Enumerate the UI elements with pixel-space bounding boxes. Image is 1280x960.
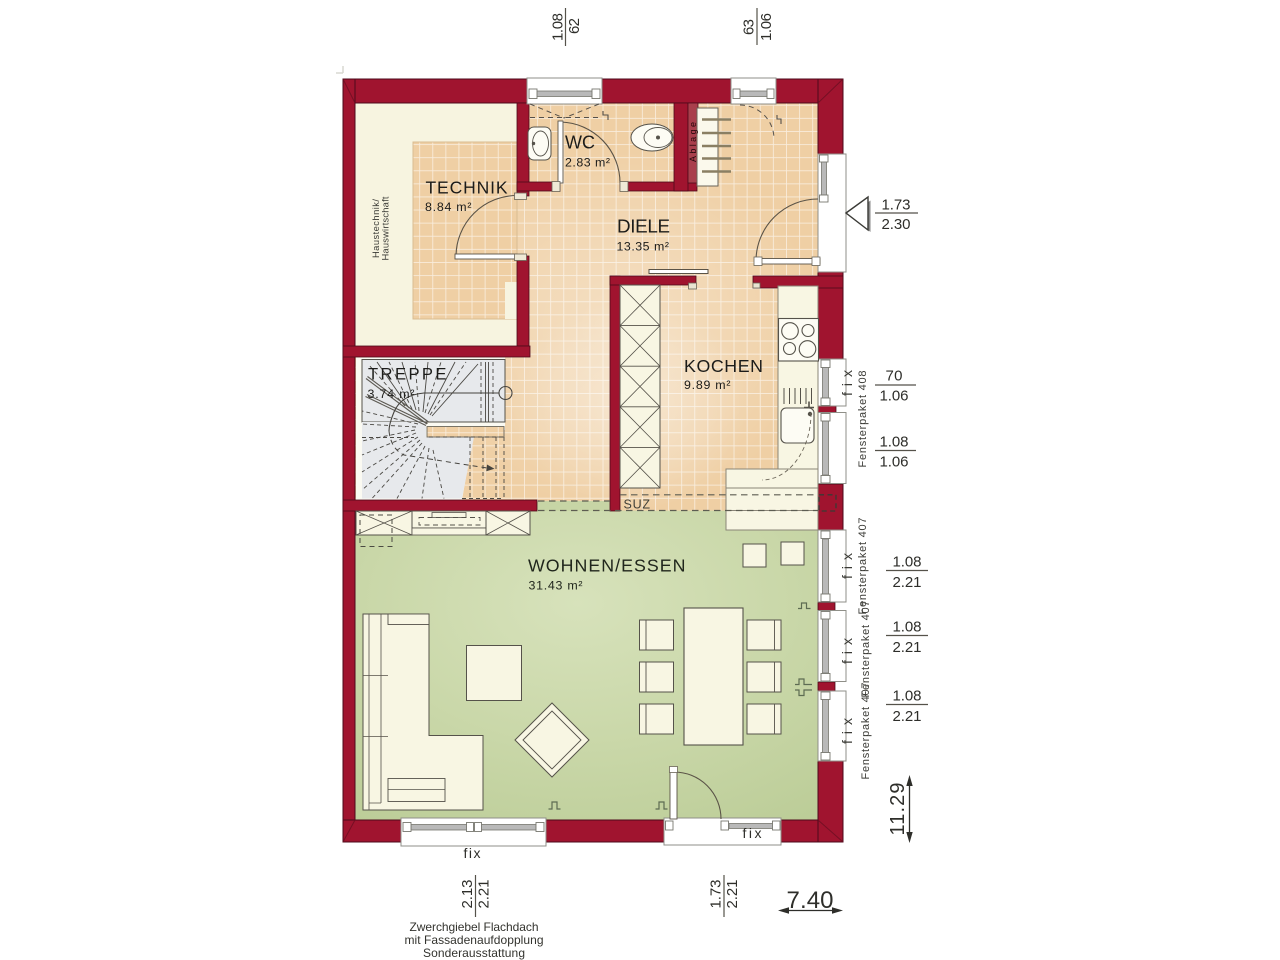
svg-text:1.06: 1.06: [880, 454, 909, 471]
svg-text:Ablage: Ablage: [688, 122, 698, 162]
svg-text:KOCHEN: KOCHEN: [684, 356, 763, 376]
svg-text:2.21: 2.21: [893, 639, 922, 656]
svg-text:Fensterpaket 408: Fensterpaket 408: [857, 371, 869, 468]
svg-text:2.21: 2.21: [893, 574, 922, 591]
svg-text:1.08: 1.08: [893, 554, 922, 571]
svg-text:1.08: 1.08: [550, 13, 567, 41]
svg-text:1.73: 1.73: [708, 880, 725, 909]
svg-text:Sonderausstattung: Sonderausstattung: [423, 946, 525, 960]
svg-text:2.13: 2.13: [459, 880, 476, 909]
svg-text:mit Fassadenaufdopplung: mit Fassadenaufdopplung: [405, 933, 544, 947]
svg-text:2.30: 2.30: [882, 216, 911, 233]
svg-text:TECHNIK: TECHNIK: [426, 178, 508, 198]
svg-text:62: 62: [566, 18, 583, 34]
svg-text:Fensterpaket 407: Fensterpaket 407: [857, 518, 869, 615]
svg-text:Fensterpaket 407: Fensterpaket 407: [860, 683, 872, 780]
svg-text:2.21: 2.21: [893, 708, 922, 725]
svg-text:1.06: 1.06: [880, 388, 909, 405]
svg-text:1.73: 1.73: [882, 197, 911, 214]
svg-text:9.89 m²: 9.89 m²: [684, 378, 731, 392]
svg-text:1.08: 1.08: [893, 619, 922, 636]
svg-text:DIELE: DIELE: [617, 216, 670, 237]
svg-text:Zwerchgiebel Flachdach: Zwerchgiebel Flachdach: [410, 920, 539, 934]
svg-text:WC: WC: [565, 133, 595, 153]
svg-text:fix: fix: [743, 825, 762, 841]
svg-text:SUZ: SUZ: [624, 498, 651, 512]
svg-text:8.84 m²: 8.84 m²: [425, 200, 472, 214]
svg-text:3.74 m²: 3.74 m²: [368, 387, 415, 401]
svg-text:Hauswirtschaft: Hauswirtschaft: [381, 196, 391, 260]
svg-text:1.06: 1.06: [758, 13, 775, 41]
svg-text:2.83 m²: 2.83 m²: [565, 156, 610, 170]
svg-text:63: 63: [741, 19, 758, 35]
svg-text:WOHNEN/ESSEN: WOHNEN/ESSEN: [528, 556, 686, 576]
svg-text:fix: fix: [464, 845, 481, 861]
svg-text:2.21: 2.21: [724, 880, 741, 909]
svg-text:1.08: 1.08: [893, 688, 922, 705]
svg-text:31.43 m²: 31.43 m²: [529, 579, 583, 593]
svg-text:70: 70: [886, 368, 903, 385]
svg-text:1.08: 1.08: [880, 434, 909, 451]
svg-text:2.21: 2.21: [476, 880, 493, 909]
svg-text:Haustechnik/: Haustechnik/: [371, 199, 381, 258]
svg-text:13.35 m²: 13.35 m²: [617, 240, 670, 254]
svg-text:11.29: 11.29: [887, 783, 909, 836]
